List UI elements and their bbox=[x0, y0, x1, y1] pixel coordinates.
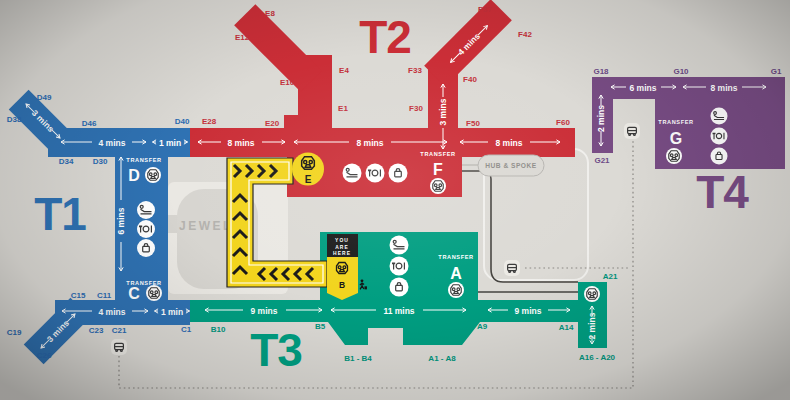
gate-label-e12: E12 bbox=[235, 33, 250, 42]
station-b-label: B bbox=[339, 280, 345, 290]
you-are-here-line3: HERE bbox=[333, 251, 351, 256]
gate-label-b1-b4: B1 - B4 bbox=[344, 354, 372, 363]
gate-label-a9: A9 bbox=[477, 322, 488, 331]
gate-label-e10: E10 bbox=[280, 78, 295, 87]
airport-terminal-map: JEWEL HUB & SPOKE bbox=[0, 0, 790, 400]
t2-amenity-icons bbox=[343, 164, 408, 183]
gate-label-a21: A21 bbox=[603, 272, 618, 281]
t4-amenity-icons bbox=[711, 108, 728, 165]
gate-label-e4: E4 bbox=[339, 66, 349, 75]
time-label: 11 mins bbox=[383, 306, 414, 316]
transfer-c-letter: C bbox=[128, 285, 140, 302]
transfer-word: TRANSFER bbox=[420, 151, 455, 157]
gate-label-f37: F37 bbox=[478, 5, 492, 14]
gate-label-c1: C1 bbox=[181, 325, 192, 334]
gate-label-e1: E1 bbox=[338, 104, 348, 113]
jewel-label: JEWEL bbox=[179, 219, 233, 233]
gate-label-c19: C19 bbox=[7, 328, 22, 337]
gate-label-e8: E8 bbox=[265, 9, 275, 18]
time-label: 6 mins bbox=[630, 83, 657, 93]
t1-amenity-icons bbox=[137, 201, 155, 257]
transfer-word: TRANSFER bbox=[438, 254, 473, 260]
gate-label-a16-a20: A16 - A20 bbox=[579, 353, 616, 362]
terminal-t1-label: T1 bbox=[34, 188, 86, 240]
you-are-here-line1: YOU bbox=[335, 238, 349, 243]
transfer-f-letter: F bbox=[433, 161, 443, 178]
gate-label-b5: B5 bbox=[315, 322, 326, 331]
gate-label-d46: D46 bbox=[82, 119, 97, 128]
time-label: 8 mins bbox=[357, 138, 384, 148]
gate-label-a14: A14 bbox=[559, 323, 574, 332]
gate-label-c11: C11 bbox=[97, 291, 112, 300]
gate-label-f30: F30 bbox=[409, 104, 423, 113]
transfer-d-letter: D bbox=[128, 167, 140, 184]
gate-label-g1: G1 bbox=[771, 67, 782, 76]
time-label: 9 mins bbox=[515, 306, 542, 316]
gate-label-e20: E20 bbox=[265, 119, 280, 128]
gate-label-f33: F33 bbox=[408, 66, 422, 75]
time-label: 8 mins bbox=[228, 138, 255, 148]
skytrain-station-a21 bbox=[584, 286, 600, 302]
gate-label-c23: C23 bbox=[89, 326, 104, 335]
station-e-label: E bbox=[305, 174, 312, 185]
time-label: 6 mins bbox=[116, 207, 126, 234]
gate-label-c26: C26 bbox=[37, 351, 52, 360]
time-label: 1 min bbox=[159, 138, 181, 148]
gate-label-c21: C21 bbox=[112, 326, 127, 335]
time-label: 9 mins bbox=[251, 306, 278, 316]
gate-label-d40: D40 bbox=[175, 117, 190, 126]
gate-label-b10: B10 bbox=[211, 325, 226, 334]
transfer-word: TRANSFER bbox=[658, 119, 693, 125]
time-label: 4 mins bbox=[99, 138, 126, 148]
gate-label-e28: E28 bbox=[202, 117, 217, 126]
gate-label-f50: F50 bbox=[466, 119, 480, 128]
gate-label-d38: D38 bbox=[7, 115, 22, 124]
shuttle-bus-icon bbox=[624, 123, 640, 139]
time-label: 1 min bbox=[161, 307, 183, 317]
shuttle-bus-icon bbox=[504, 260, 520, 276]
shuttle-bus-icon bbox=[111, 339, 127, 355]
transfer-a-letter: A bbox=[450, 265, 462, 282]
you-are-here-line2: ARE bbox=[335, 245, 349, 250]
transfer-g-letter: G bbox=[670, 130, 682, 147]
time-label: 3 mins bbox=[438, 98, 448, 125]
terminal-t3-label: T3 bbox=[250, 324, 302, 376]
gate-label-d30: D30 bbox=[93, 157, 108, 166]
gate-label-d49: D49 bbox=[37, 93, 52, 102]
time-label: 2 mins bbox=[596, 105, 606, 132]
gate-label-d34: D34 bbox=[59, 157, 74, 166]
time-label: 8 mins bbox=[711, 83, 738, 93]
gate-label-g10: G10 bbox=[673, 67, 689, 76]
time-label: 2 mins bbox=[587, 312, 597, 339]
gate-label-g18: G18 bbox=[593, 67, 609, 76]
terminal-t2-label: T2 bbox=[359, 11, 411, 63]
gate-label-g21: G21 bbox=[594, 156, 610, 165]
gate-label-f60: F60 bbox=[556, 118, 570, 127]
terminal-t4-label: T4 bbox=[696, 166, 749, 218]
transfer-word: TRANSFER bbox=[126, 157, 161, 163]
gate-label-f40: F40 bbox=[463, 75, 477, 84]
time-label: 8 mins bbox=[496, 138, 523, 148]
gate-label-f42: F42 bbox=[518, 30, 532, 39]
t3-amenity-icons bbox=[390, 236, 409, 297]
skytrain-station-e: E bbox=[292, 153, 324, 186]
time-label: 4 mins bbox=[99, 307, 126, 317]
gate-label-a1-a8: A1 - A8 bbox=[428, 354, 456, 363]
gate-label-c15: C15 bbox=[71, 291, 86, 300]
hub-spoke-label: HUB & SPOKE bbox=[485, 162, 536, 169]
